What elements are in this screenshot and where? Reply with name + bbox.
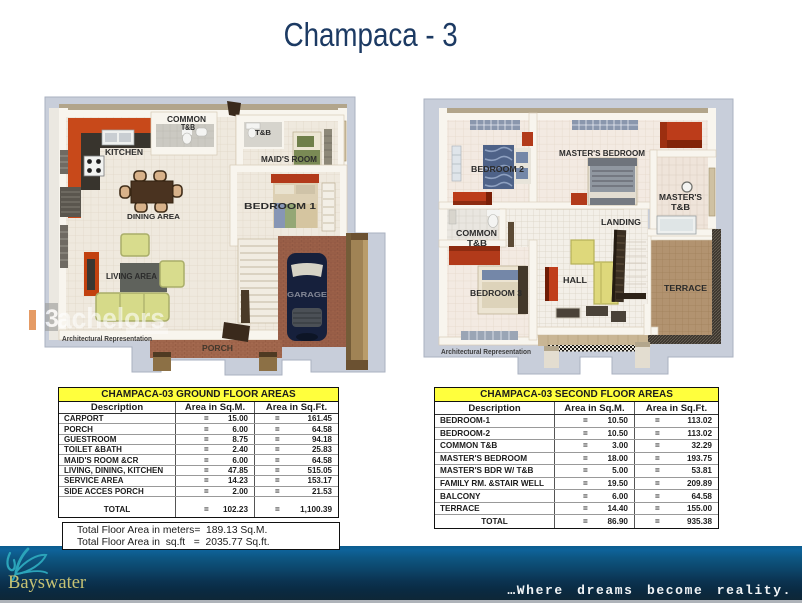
svg-text:LIVING AREA: LIVING AREA	[106, 272, 157, 281]
svg-text:LANDING: LANDING	[601, 218, 641, 227]
svg-text:COMMON: COMMON	[456, 229, 497, 238]
svg-text:DINING AREA: DINING AREA	[127, 212, 181, 221]
svg-text:BEDROOM 2: BEDROOM 2	[471, 165, 525, 174]
svg-text:KITCHEN: KITCHEN	[105, 148, 143, 157]
svg-text:T&B: T&B	[181, 122, 195, 132]
svg-text:PORCH: PORCH	[202, 344, 233, 353]
svg-text:BEDROOM 1: BEDROOM 1	[244, 201, 316, 211]
svg-text:Architectural Representation: Architectural Representation	[441, 347, 531, 356]
svg-text:GARAGE: GARAGE	[287, 290, 327, 299]
svg-text:T&B: T&B	[671, 203, 690, 212]
svg-text:MAID'S ROOM: MAID'S ROOM	[261, 155, 317, 164]
svg-text:TERRACE: TERRACE	[664, 284, 708, 293]
svg-text:Architectural Representation: Architectural Representation	[62, 334, 152, 343]
svg-text:HALL: HALL	[563, 276, 587, 285]
svg-text:MASTER'S BEDROOM: MASTER'S BEDROOM	[559, 149, 645, 158]
svg-text:MASTER'S: MASTER'S	[659, 193, 702, 202]
svg-text:T&B: T&B	[255, 128, 271, 137]
svg-text:BEDROOM 3: BEDROOM 3	[470, 289, 523, 298]
